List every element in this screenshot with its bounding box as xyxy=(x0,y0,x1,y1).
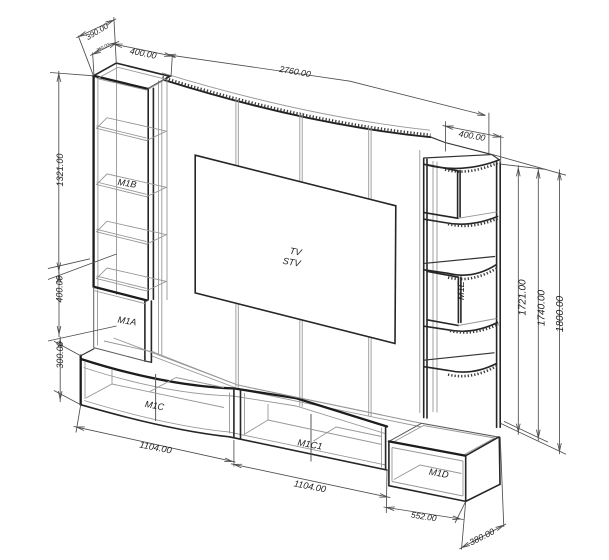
svg-text:M1E: M1E xyxy=(456,280,466,300)
svg-text:1800.00: 1800.00 xyxy=(555,295,566,332)
svg-text:300.00: 300.00 xyxy=(55,341,65,368)
svg-text:400.00: 400.00 xyxy=(55,275,65,302)
svg-text:1740.00: 1740.00 xyxy=(536,289,547,326)
svg-text:1721.00: 1721.00 xyxy=(517,279,528,316)
svg-text:1321.00: 1321.00 xyxy=(55,154,65,187)
